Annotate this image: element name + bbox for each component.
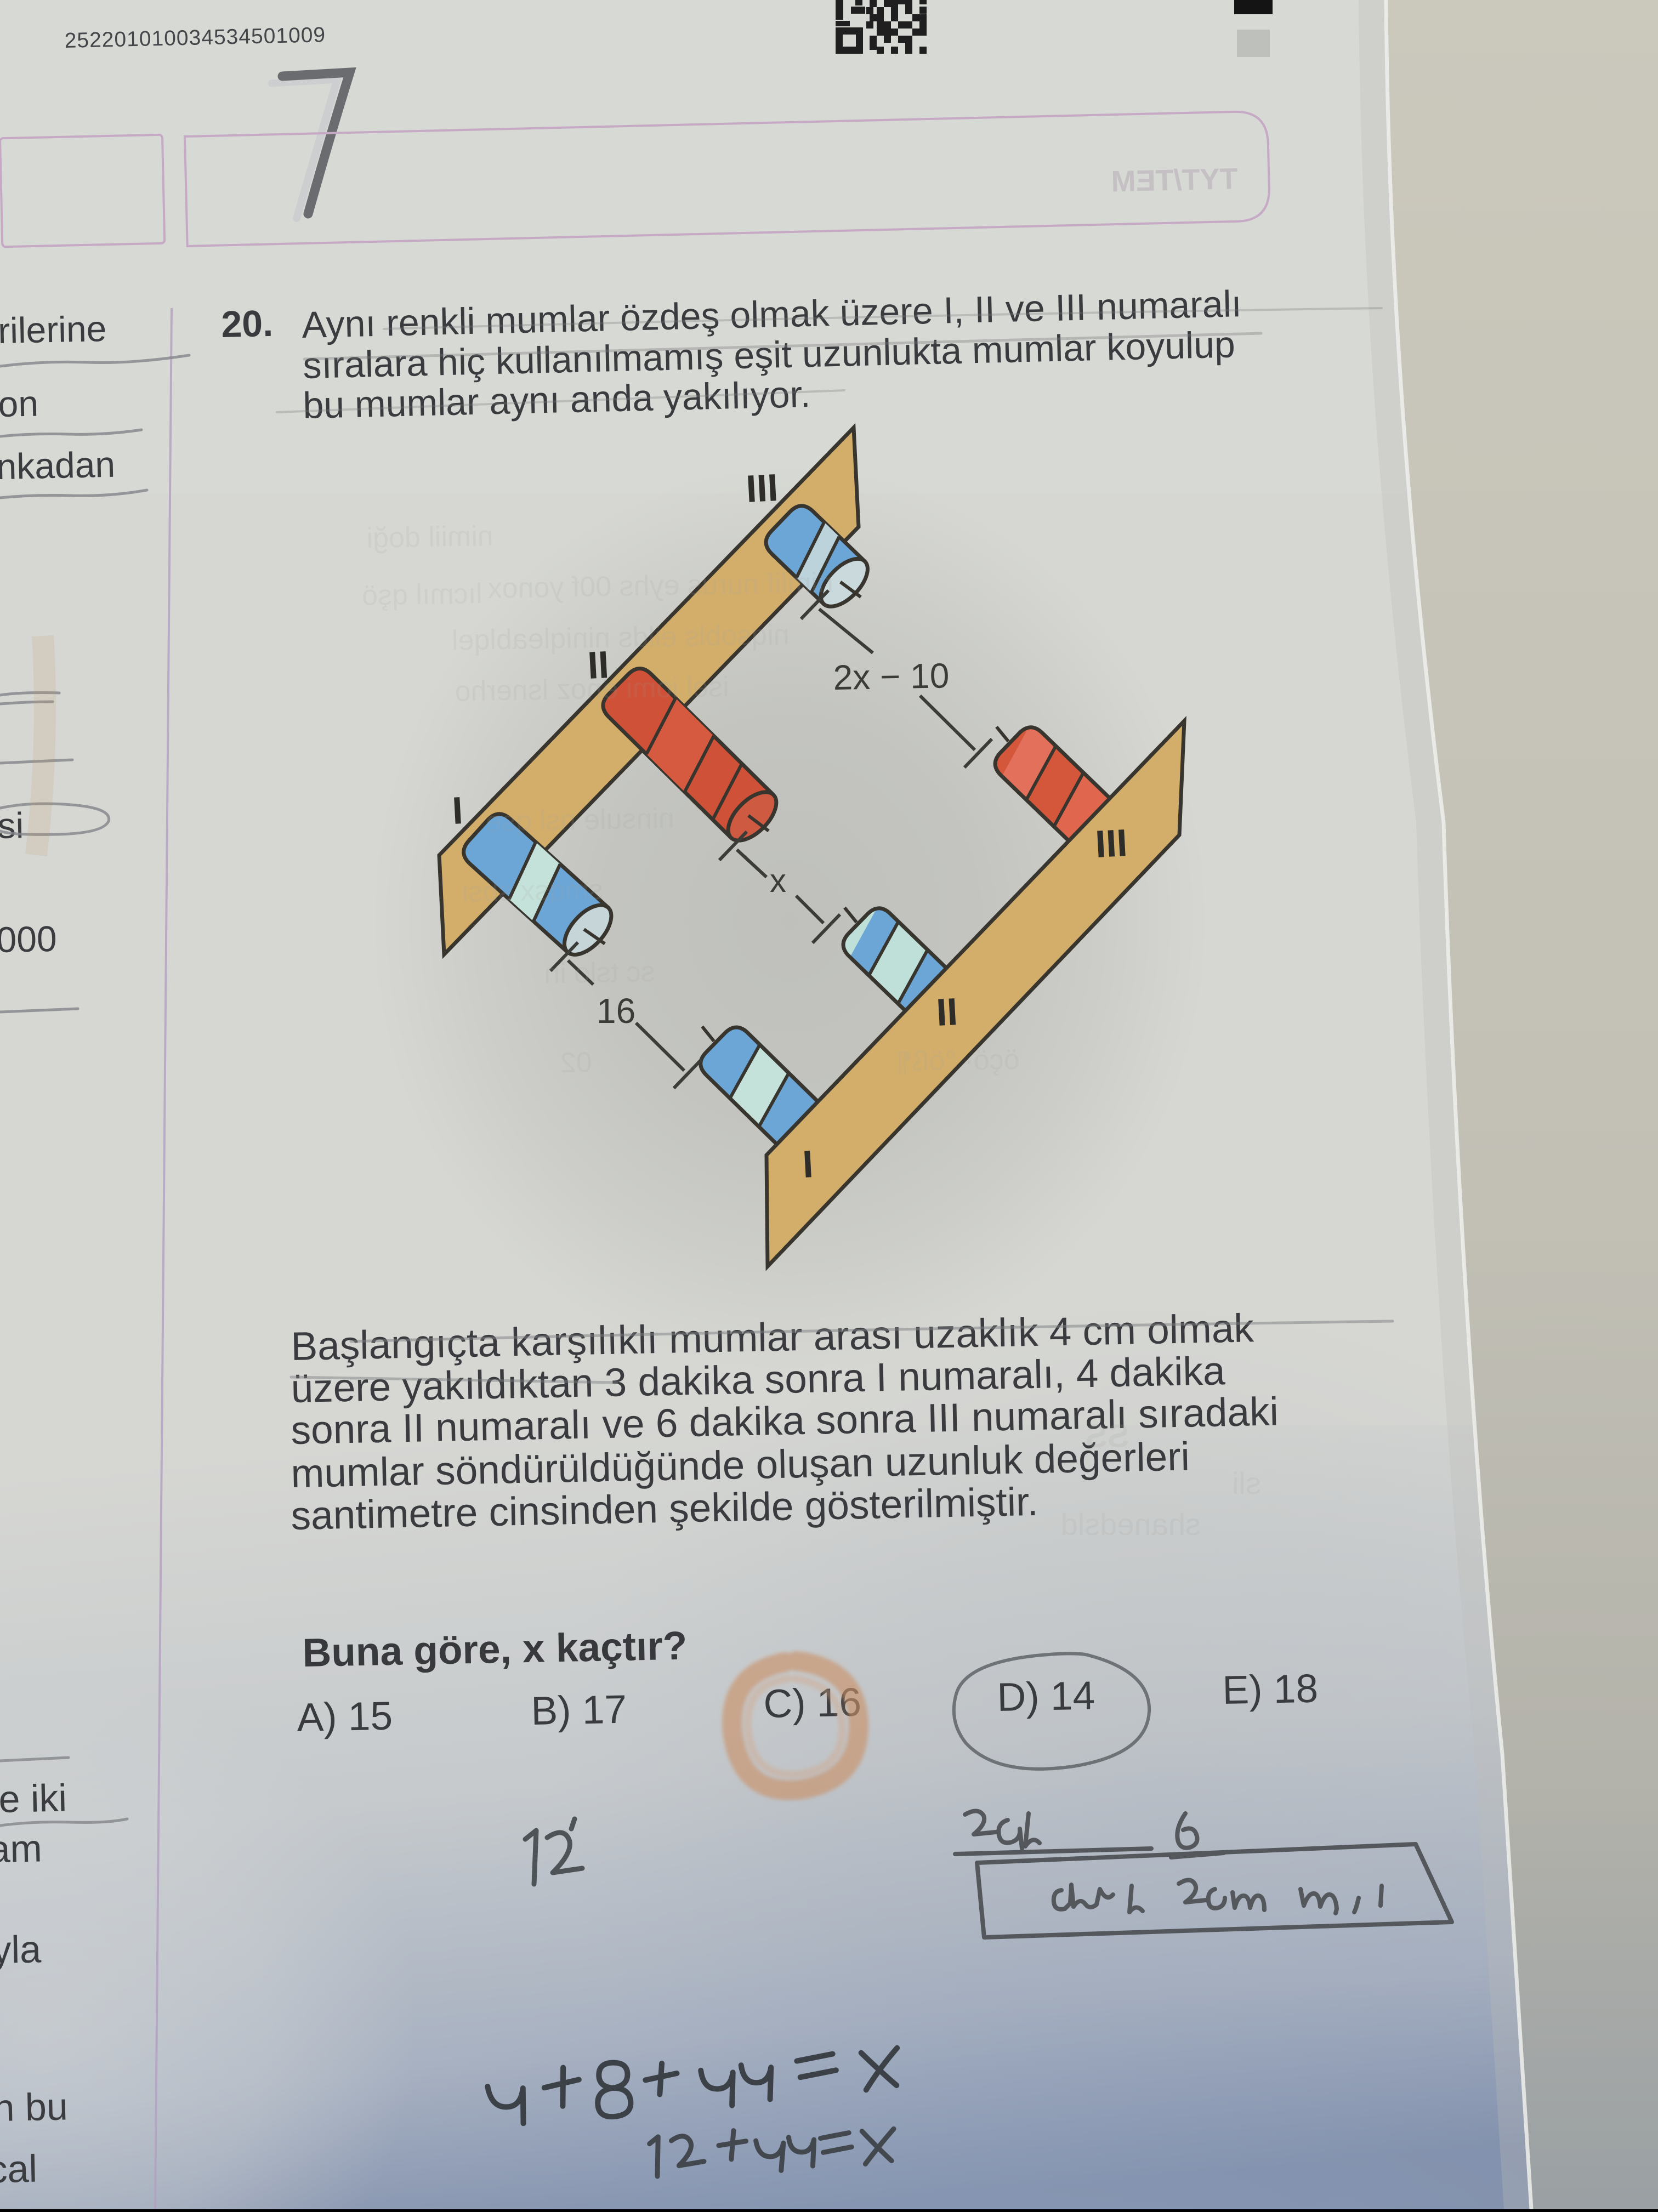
svg-text:si: si bbox=[0, 805, 24, 846]
svg-text:sc tslo in: sc tslo in bbox=[544, 956, 655, 990]
svg-text:yon: yon bbox=[0, 383, 39, 425]
svg-text:niqsobls eilds niniqleablqel: niqsobls eilds niniqleablqel bbox=[452, 619, 790, 657]
svg-text:am: am bbox=[0, 1827, 43, 1870]
svg-text:000: 000 bbox=[0, 918, 57, 960]
svg-text:smqsx sbsi: smqsx sbsi bbox=[462, 874, 603, 908]
svg-text:ve iki: ve iki bbox=[0, 1776, 67, 1821]
svg-text:lıcmıl qşö: lıcmıl qşö bbox=[362, 578, 483, 612]
svg-text:nimlif nurus eyhs 00f yonox: nimlif nurus eyhs 00f yonox bbox=[487, 567, 833, 605]
svg-text:II: II bbox=[935, 990, 959, 1034]
svg-text:20.: 20. bbox=[221, 303, 274, 345]
svg-text:III: III bbox=[745, 466, 779, 510]
svg-text:E) 18: E) 18 bbox=[1222, 1667, 1319, 1713]
svg-text:B) 17: B) 17 bbox=[531, 1687, 627, 1733]
svg-text:Buna göre, x kaçtır?: Buna göre, x kaçtır? bbox=[302, 1624, 688, 1675]
svg-text:yla: yla bbox=[0, 1927, 42, 1971]
svg-text:nkadan: nkadan bbox=[0, 444, 116, 487]
svg-text:A) 15: A) 15 bbox=[297, 1694, 393, 1740]
svg-text:2x − 10: 2x − 10 bbox=[833, 656, 950, 697]
svg-text:I: I bbox=[802, 1142, 815, 1186]
svg-text:D) 14: D) 14 bbox=[997, 1674, 1095, 1720]
svg-text:ninsule nsl qse: ninsule nsl qse bbox=[485, 803, 674, 838]
svg-text:02: 02 bbox=[560, 1047, 592, 1079]
svg-text:cal: cal bbox=[0, 2147, 38, 2191]
svg-text:nimiil doği: nimiil doği bbox=[366, 520, 493, 554]
svg-text:n bu: n bu bbox=[0, 2085, 69, 2129]
svg-text:I: I bbox=[451, 789, 464, 832]
svg-text:III: III bbox=[1094, 821, 1128, 866]
svg-text:x: x bbox=[770, 862, 786, 899]
svg-text:erilerine: erilerine bbox=[0, 308, 107, 351]
svg-text:SS: SS bbox=[1086, 1418, 1129, 1454]
svg-text:sli: sli bbox=[1232, 1466, 1261, 1500]
svg-text:16: 16 bbox=[597, 991, 635, 1031]
svg-text:öçö· °öß¶: öçö· °öß¶ bbox=[896, 1044, 1020, 1078]
svg-text:shanedsld: shanedsld bbox=[1061, 1507, 1201, 1542]
svg-text:isel iomi enoz lsnerho: isel iomi enoz lsnerho bbox=[455, 671, 729, 708]
svg-text:TYT/TEM: TYT/TEM bbox=[1111, 162, 1238, 198]
